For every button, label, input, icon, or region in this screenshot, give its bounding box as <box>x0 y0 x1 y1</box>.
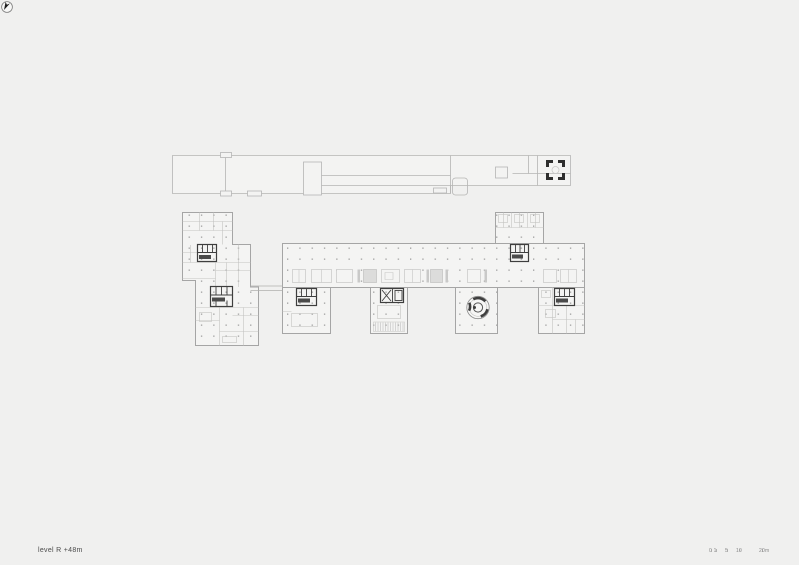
left-tower <box>183 213 259 346</box>
main-floor-plan <box>183 213 585 346</box>
strip-outline <box>173 156 571 194</box>
drawing-sheet: level R +48m 0 1 5 10 20m <box>0 0 799 565</box>
scale-bar-ticks <box>711 549 763 552</box>
plan-drawing <box>0 0 799 565</box>
strip-notch <box>221 153 232 158</box>
strip-core <box>304 162 322 195</box>
spiral-stair-icon <box>467 296 489 318</box>
upper-strip-drawing <box>173 153 571 197</box>
drawing-title: level R +48m <box>38 547 83 554</box>
strip-notch <box>248 191 262 196</box>
strip-notch <box>221 191 232 196</box>
